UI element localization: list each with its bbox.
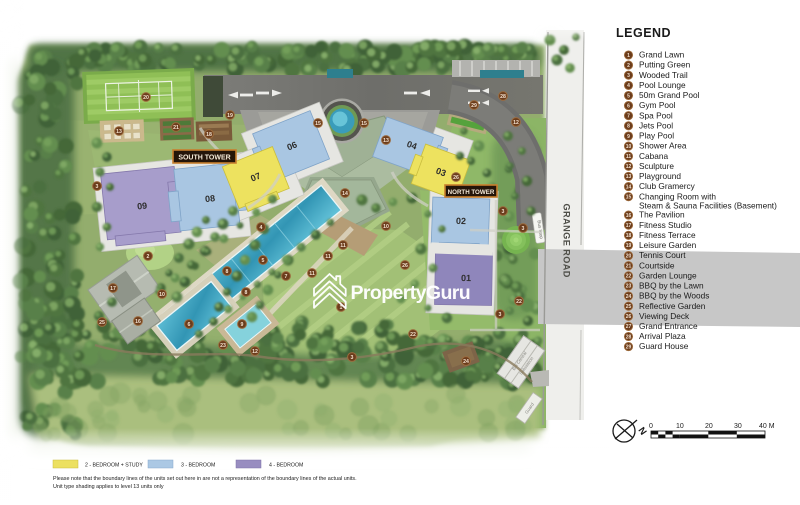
svg-text:11: 11 [340, 243, 346, 249]
svg-text:Club Gramercy: Club Gramercy [639, 181, 696, 191]
svg-text:3: 3 [627, 73, 630, 79]
svg-text:15: 15 [315, 121, 321, 127]
svg-text:20: 20 [705, 423, 713, 430]
svg-text:10: 10 [626, 144, 632, 150]
svg-text:2: 2 [627, 63, 630, 69]
svg-text:25: 25 [626, 304, 632, 310]
svg-text:5: 5 [627, 93, 630, 99]
svg-text:14: 14 [342, 191, 348, 197]
svg-text:25: 25 [99, 320, 105, 326]
svg-text:Please note that the boundary: Please note that the boundary lines of t… [53, 476, 357, 482]
svg-text:10: 10 [159, 292, 165, 298]
svg-text:Spa Pool: Spa Pool [639, 110, 673, 120]
svg-text:29: 29 [471, 103, 477, 109]
svg-text:29: 29 [626, 344, 632, 350]
svg-text:Courtside: Courtside [639, 260, 675, 270]
svg-text:02: 02 [456, 216, 466, 226]
svg-text:16: 16 [135, 319, 141, 325]
svg-text:Cabana: Cabana [639, 151, 668, 161]
svg-text:Sculpture: Sculpture [639, 161, 674, 171]
svg-text:23: 23 [220, 343, 226, 349]
svg-text:12: 12 [513, 120, 519, 126]
svg-text:7: 7 [627, 114, 630, 120]
svg-text:Putting Green: Putting Green [639, 60, 691, 70]
svg-text:24: 24 [626, 294, 632, 300]
svg-text:13: 13 [383, 138, 389, 144]
svg-text:3 - BEDROOM: 3 - BEDROOM [181, 463, 215, 469]
svg-text:6: 6 [188, 322, 191, 328]
svg-text:21: 21 [626, 264, 632, 270]
svg-text:26: 26 [402, 263, 408, 269]
svg-text:Grand Lawn: Grand Lawn [639, 50, 685, 60]
svg-text:BBQ by the Lawn: BBQ by the Lawn [639, 281, 704, 291]
svg-text:23: 23 [626, 284, 632, 290]
svg-text:Tennis Court: Tennis Court [639, 250, 686, 260]
svg-text:Viewing Deck: Viewing Deck [639, 311, 690, 321]
svg-text:5: 5 [262, 258, 265, 264]
svg-text:16: 16 [626, 213, 632, 219]
svg-text:17: 17 [110, 286, 116, 292]
svg-text:11: 11 [626, 154, 632, 160]
svg-text:27: 27 [626, 324, 632, 330]
svg-text:PropertyGuru: PropertyGuru [351, 282, 471, 304]
svg-text:19: 19 [227, 113, 233, 119]
svg-text:3: 3 [96, 184, 99, 190]
svg-text:Jets Pool: Jets Pool [639, 120, 673, 130]
svg-text:24: 24 [463, 359, 469, 365]
svg-text:4: 4 [627, 83, 630, 89]
svg-text:1: 1 [627, 53, 630, 59]
svg-text:8: 8 [245, 290, 248, 296]
svg-text:BBQ by the Woods: BBQ by the Woods [639, 291, 709, 301]
svg-text:Shower Area: Shower Area [639, 141, 687, 151]
svg-text:21: 21 [173, 125, 179, 131]
svg-text:3: 3 [522, 226, 525, 232]
svg-text:19: 19 [626, 243, 632, 249]
svg-text:08: 08 [205, 193, 216, 204]
svg-text:10: 10 [383, 224, 389, 230]
svg-text:Unit type shading applies to l: Unit type shading applies to level 13 un… [53, 484, 164, 490]
svg-text:20: 20 [143, 95, 149, 101]
svg-text:The Pavilion: The Pavilion [639, 210, 685, 220]
svg-text:Garden Lounge: Garden Lounge [639, 270, 697, 280]
svg-text:18: 18 [626, 233, 632, 239]
svg-text:26: 26 [453, 175, 459, 181]
svg-text:26: 26 [626, 314, 632, 320]
svg-text:40 M: 40 M [759, 423, 775, 430]
svg-text:22: 22 [410, 332, 416, 338]
svg-text:7: 7 [285, 274, 288, 280]
svg-text:8: 8 [627, 124, 630, 130]
svg-text:Playground: Playground [639, 171, 681, 181]
svg-text:3: 3 [499, 312, 502, 318]
svg-text:15: 15 [626, 195, 632, 201]
svg-text:14: 14 [626, 184, 632, 190]
svg-text:SOUTH TOWER: SOUTH TOWER [178, 155, 230, 162]
svg-text:Pool Lounge: Pool Lounge [639, 80, 686, 90]
svg-text:28: 28 [500, 94, 506, 100]
svg-text:3: 3 [502, 209, 505, 215]
svg-text:0: 0 [649, 423, 653, 430]
svg-text:12: 12 [626, 164, 632, 170]
svg-text:2 - BEDROOM + STUDY: 2 - BEDROOM + STUDY [85, 463, 143, 469]
svg-text:Leisure Garden: Leisure Garden [639, 240, 697, 250]
svg-text:LEGEND: LEGEND [616, 26, 671, 40]
svg-text:20: 20 [626, 253, 632, 259]
svg-text:NORTH TOWER: NORTH TOWER [448, 189, 495, 196]
svg-text:2: 2 [147, 254, 150, 260]
svg-text:10: 10 [676, 423, 684, 430]
svg-text:15: 15 [361, 121, 367, 127]
svg-text:12: 12 [252, 349, 258, 355]
svg-text:22: 22 [516, 299, 522, 305]
svg-text:28: 28 [626, 334, 632, 340]
svg-text:30: 30 [734, 423, 742, 430]
svg-text:GRANGE ROAD: GRANGE ROAD [562, 204, 572, 278]
svg-text:6: 6 [627, 103, 630, 109]
svg-text:13: 13 [116, 129, 122, 135]
svg-text:22: 22 [626, 274, 632, 280]
svg-text:Arrival Plaza: Arrival Plaza [639, 331, 686, 341]
svg-text:17: 17 [626, 223, 632, 229]
svg-text:Gym Pool: Gym Pool [639, 100, 676, 110]
svg-text:Play Pool: Play Pool [639, 131, 674, 141]
svg-text:50m Grand Pool: 50m Grand Pool [639, 90, 700, 100]
svg-text:9: 9 [627, 134, 630, 140]
svg-text:09: 09 [137, 200, 148, 211]
svg-text:Grand Entrance: Grand Entrance [639, 321, 698, 331]
svg-text:4 - BEDROOM: 4 - BEDROOM [269, 463, 303, 469]
svg-text:3: 3 [351, 355, 354, 361]
svg-text:11: 11 [309, 271, 315, 277]
svg-text:13: 13 [626, 174, 632, 180]
svg-text:Guard House: Guard House [639, 341, 689, 351]
svg-text:11: 11 [325, 254, 331, 260]
svg-text:Fitness Studio: Fitness Studio [639, 220, 692, 230]
svg-text:Reflective Garden: Reflective Garden [639, 301, 706, 311]
svg-text:Wooded Trail: Wooded Trail [639, 70, 688, 80]
svg-text:8: 8 [226, 269, 229, 275]
svg-text:9: 9 [241, 322, 244, 328]
svg-text:Fitness Terrace: Fitness Terrace [639, 230, 696, 240]
svg-text:4: 4 [260, 225, 263, 231]
svg-text:18: 18 [206, 132, 212, 138]
